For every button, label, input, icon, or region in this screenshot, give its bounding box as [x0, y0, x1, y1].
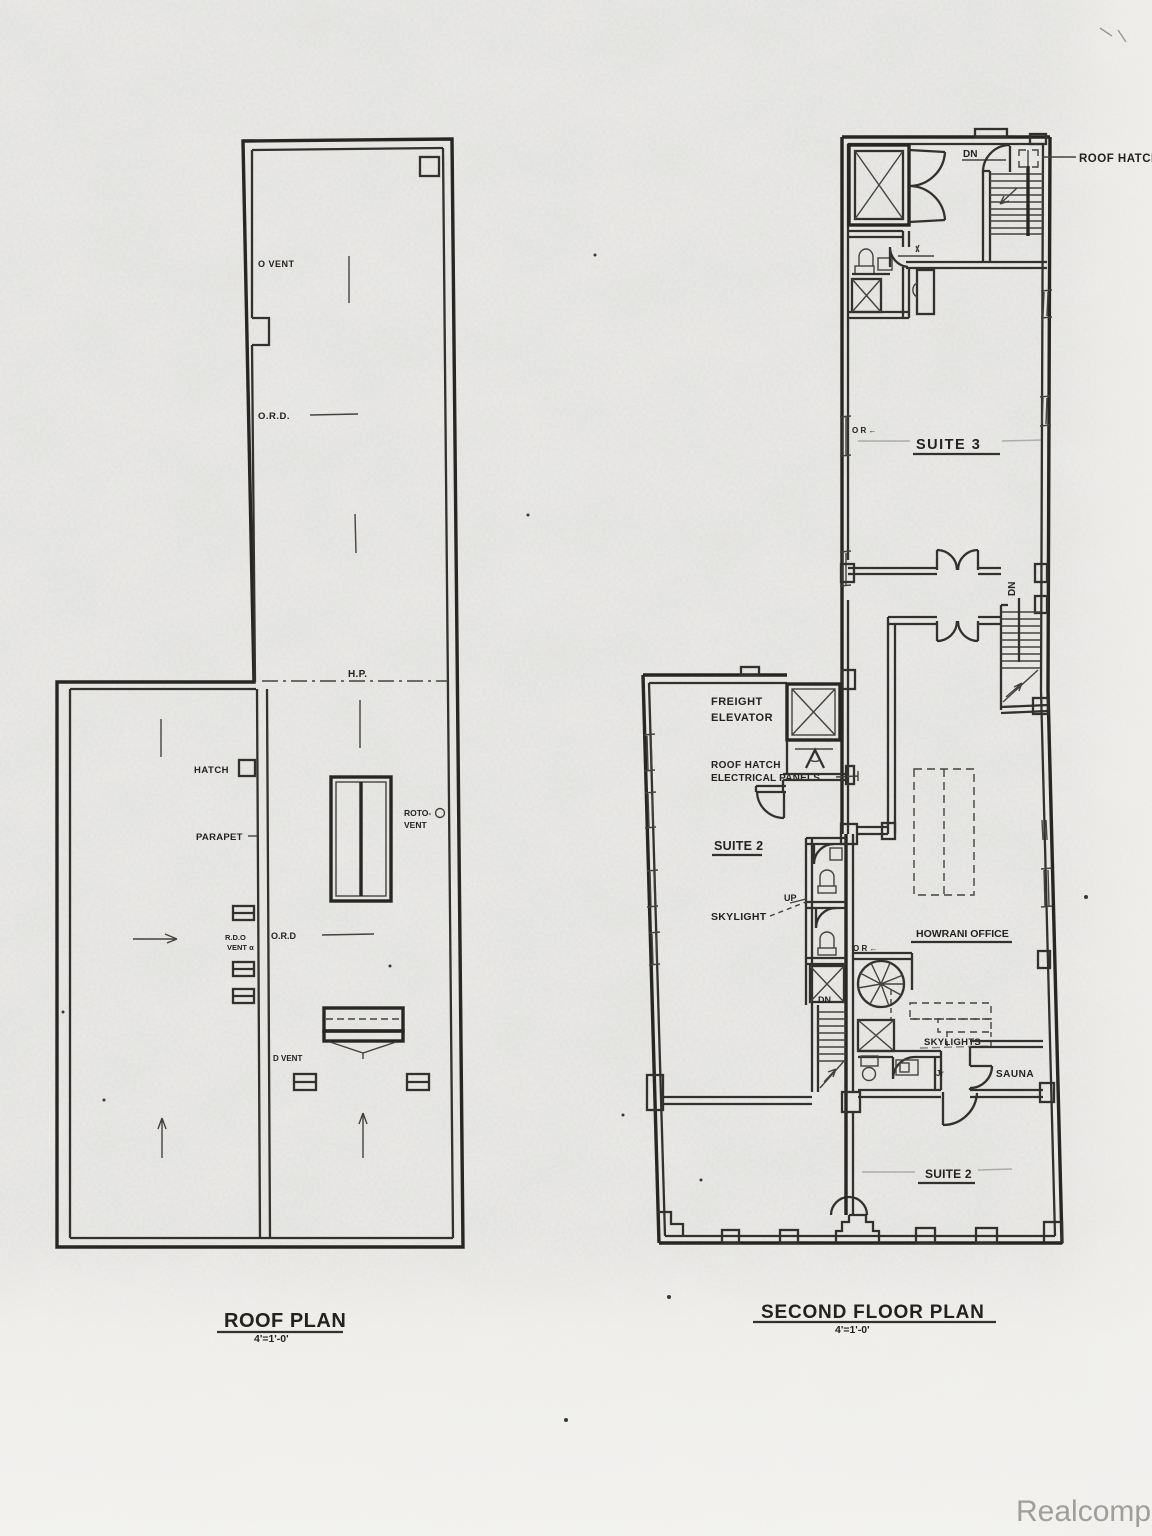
svg-text:VENT: VENT [404, 820, 427, 830]
svg-text:4'=1'-0': 4'=1'-0' [254, 1333, 289, 1345]
svg-text:ROOF PLAN: ROOF PLAN [224, 1310, 346, 1332]
svg-text:DN: DN [1007, 582, 1018, 596]
svg-text:R.D.O: R.D.O [225, 933, 246, 942]
svg-text:O.R.D: O.R.D [271, 931, 297, 941]
svg-text:O R ←: O R ← [852, 426, 876, 435]
svg-text:H.P.: H.P. [348, 669, 367, 680]
svg-text:ROOF HATCH: ROOF HATCH [1079, 153, 1152, 165]
svg-text:SUITE 2: SUITE 2 [925, 1167, 972, 1181]
svg-text:4'=1'-0': 4'=1'-0' [835, 1324, 870, 1336]
svg-text:FREIGHT: FREIGHT [711, 696, 763, 708]
svg-text:ELEVATOR: ELEVATOR [711, 712, 773, 724]
svg-text:SECOND FLOOR PLAN: SECOND FLOOR PLAN [761, 1302, 985, 1323]
svg-text:Jr: Jr [936, 1069, 944, 1078]
svg-text:ROOF HATCH: ROOF HATCH [711, 760, 781, 771]
svg-text:HATCH: HATCH [194, 765, 229, 776]
svg-text:VENT α: VENT α [227, 943, 254, 952]
svg-text:SAUNA: SAUNA [996, 1069, 1034, 1080]
svg-text:DN: DN [963, 149, 977, 160]
svg-text:Realcomp: Realcomp [1016, 1495, 1151, 1528]
svg-text:D VENT: D VENT [273, 1054, 302, 1063]
svg-text:SKYLIGHT: SKYLIGHT [711, 911, 767, 923]
svg-text:SUITE 2: SUITE 2 [714, 839, 763, 853]
svg-text:PARAPET: PARAPET [196, 832, 243, 843]
svg-text:ROTO-: ROTO- [404, 808, 431, 818]
svg-text:HOWRANI OFFICE: HOWRANI OFFICE [916, 928, 1009, 940]
svg-text:DN: DN [818, 995, 831, 1005]
svg-text:O.R.D.: O.R.D. [258, 411, 290, 422]
svg-text:O VENT: O VENT [258, 259, 295, 269]
svg-text:O R ←: O R ← [853, 944, 877, 953]
svg-text:SUITE 3: SUITE 3 [916, 437, 981, 453]
